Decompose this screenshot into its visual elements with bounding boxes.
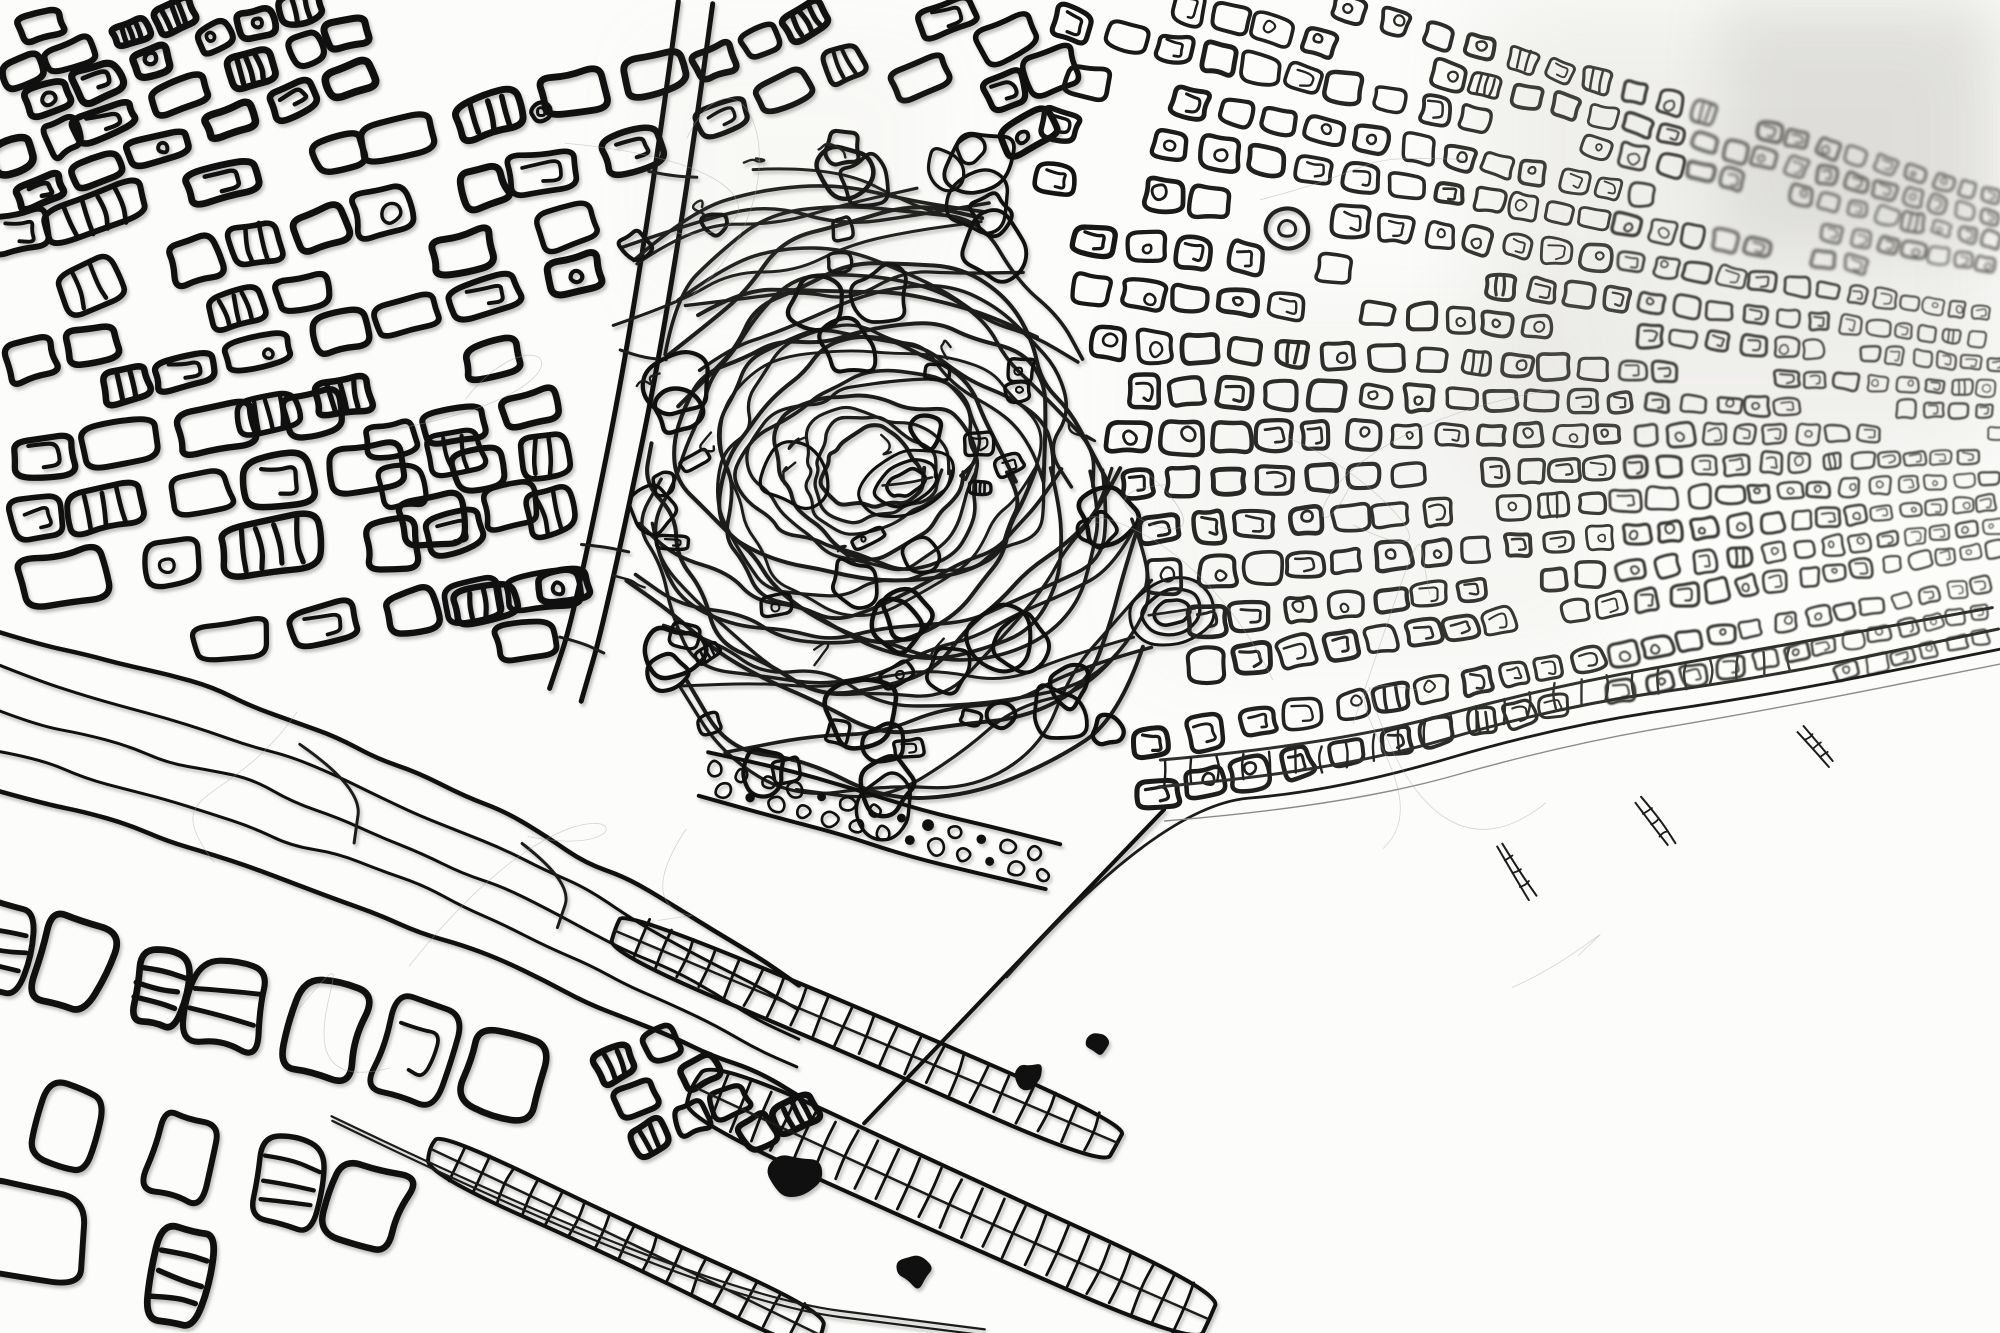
groyne [1798, 726, 1833, 767]
quay [428, 1139, 824, 1333]
district-eixample-grid [1035, 0, 2000, 808]
near-city-layer [0, 0, 1308, 1333]
groyne [1497, 844, 1536, 900]
highway-southwest-highway [0, 632, 800, 1097]
groyne [1636, 797, 1676, 845]
grid-farthest-blur [1687, 100, 2000, 274]
district-north-central-blocks [692, 0, 1079, 157]
quay [687, 1070, 1215, 1333]
roundabout [1266, 208, 1308, 248]
city-map-drawing [0, 0, 2000, 1333]
district-southwest-industrial [0, 901, 546, 1326]
artwork-photo [0, 0, 2000, 1333]
